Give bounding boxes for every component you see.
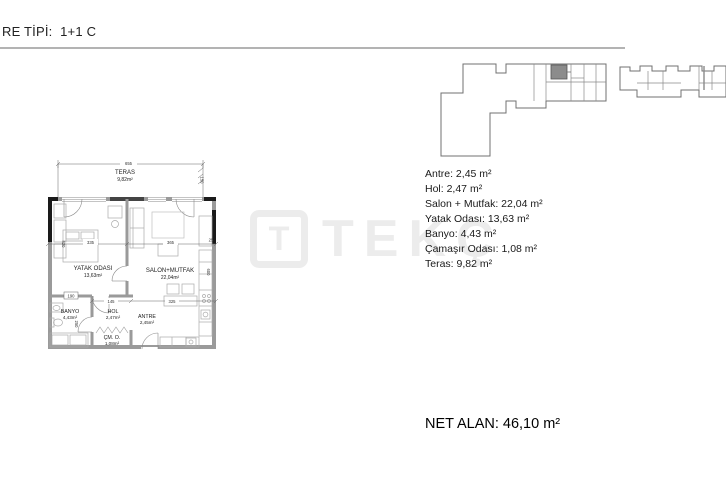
list-item: Salon + Mutfak: 22,04 m² xyxy=(425,197,543,212)
site-key-plan xyxy=(428,52,726,167)
apartment-floor-plan: 655 150 TERAS 9,82m² xyxy=(33,150,235,368)
dim-yatak-height: 420 xyxy=(61,241,66,249)
list-item: Yatak Odası: 13,63 m² xyxy=(425,212,543,227)
dim-mutfak-width: 325 xyxy=(169,299,177,304)
room-label-yatak: YATAK ODASI xyxy=(74,266,113,272)
net-alan: NET ALAN: 46,10 m² xyxy=(425,413,637,437)
dim-door-width: 190 xyxy=(68,293,76,298)
area-summary: NET ALAN: 46,10 m² BALKONLU NET ALAN: 55… xyxy=(425,366,637,485)
watermark-logo-letter: T xyxy=(269,220,290,259)
dim-salon-height: 600 xyxy=(206,269,211,277)
room-area-yatak: 13,63m² xyxy=(84,273,103,279)
room-area-hol: 2,47m² xyxy=(106,315,121,320)
list-item: Antre: 2,45 m² xyxy=(425,167,543,182)
dim-wall-right: 25 xyxy=(209,238,214,243)
list-item: Hol: 2,47 m² xyxy=(425,182,543,197)
list-item: Banyo: 4,43 m² xyxy=(425,227,543,242)
room-label-salon: SALON+MUTFAK xyxy=(146,268,194,274)
dim-salon-width: 365 xyxy=(167,240,175,245)
dim-hol-width: 145 xyxy=(108,299,116,304)
dim-total-width: 655 xyxy=(125,161,133,166)
room-label-teras: TERAS xyxy=(115,170,135,176)
page-title: RE TİPİ: 1+1 C xyxy=(2,24,96,39)
room-area-salon: 22,04m² xyxy=(161,275,180,281)
room-area-banyo: 4,43m² xyxy=(63,315,78,320)
dim-yatak-width: 335 xyxy=(87,240,95,245)
building-b-outline xyxy=(620,66,726,97)
room-measurements-list: Antre: 2,45 m² Hol: 2,47 m² Salon + Mutf… xyxy=(425,167,543,272)
list-item: Teras: 9,82 m² xyxy=(425,257,543,272)
dim-banyo-height: 250 xyxy=(74,321,79,329)
room-area-teras: 9,82m² xyxy=(117,177,133,183)
watermark-logo-icon: T xyxy=(250,210,308,268)
dim-teras-depth: 150 xyxy=(200,177,205,185)
header-divider xyxy=(0,47,625,49)
list-item: Çamaşır Odası: 1,08 m² xyxy=(425,242,543,257)
floor-plan-page: T TEKÇ RE TİPİ: 1+1 C xyxy=(0,0,726,485)
room-area-camasir: 1,08m² xyxy=(105,341,120,346)
highlighted-unit xyxy=(551,65,567,79)
room-area-antre: 2,45m² xyxy=(140,320,155,325)
